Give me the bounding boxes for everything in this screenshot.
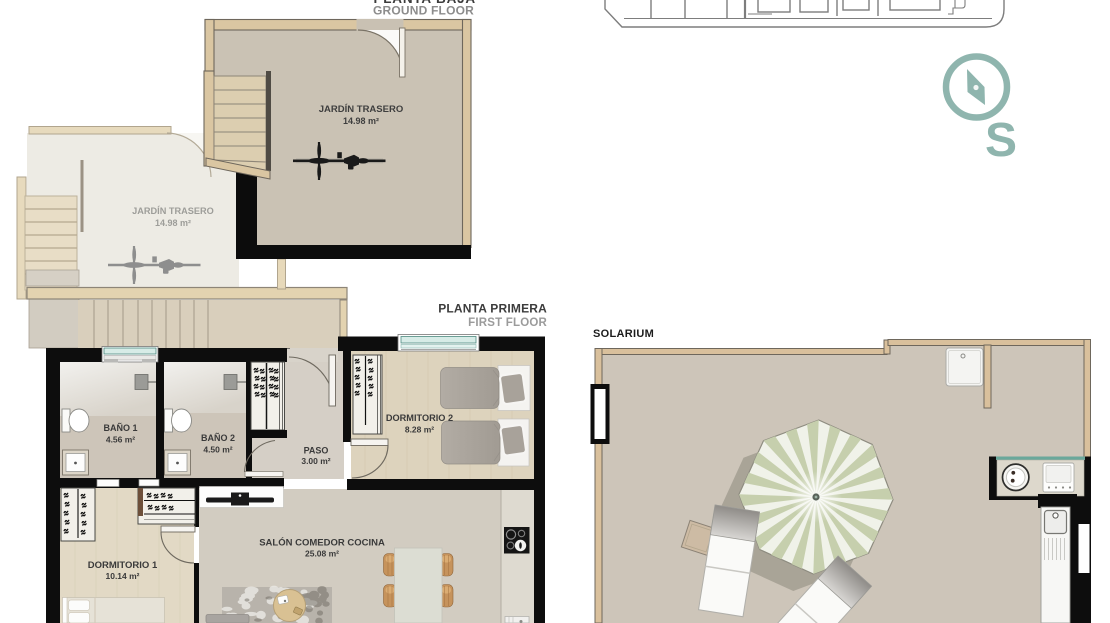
svg-text:PASO: PASO	[304, 446, 329, 456]
svg-text:4.56 m²: 4.56 m²	[106, 435, 135, 445]
svg-text:SALÓN COMEDOR COCINA: SALÓN COMEDOR COCINA	[259, 537, 385, 549]
svg-text:JARDÍN TRASERO: JARDÍN TRASERO	[132, 205, 214, 216]
svg-text:4.50 m²: 4.50 m²	[203, 445, 232, 455]
svg-text:GROUND FLOOR: GROUND FLOOR	[373, 4, 474, 18]
svg-text:25.08 m²: 25.08 m²	[305, 549, 339, 559]
svg-text:JARDÍN TRASERO: JARDÍN TRASERO	[319, 104, 403, 115]
svg-text:DORMITORIO 2: DORMITORIO 2	[386, 413, 453, 423]
svg-text:10.14 m²: 10.14 m²	[105, 571, 139, 581]
svg-text:SOLARIUM: SOLARIUM	[593, 328, 654, 340]
svg-text:PLANTA PRIMERA: PLANTA PRIMERA	[438, 302, 547, 316]
svg-text:DORMITORIO 1: DORMITORIO 1	[88, 560, 158, 571]
svg-text:3.00 m²: 3.00 m²	[301, 456, 330, 466]
svg-text:8.28 m²: 8.28 m²	[405, 425, 434, 435]
svg-text:14.98 m²: 14.98 m²	[155, 218, 191, 228]
svg-text:BAÑO 1: BAÑO 1	[103, 423, 137, 433]
svg-text:BAÑO 2: BAÑO 2	[201, 433, 235, 443]
svg-text:S: S	[985, 114, 1017, 167]
svg-text:FIRST FLOOR: FIRST FLOOR	[468, 317, 547, 329]
svg-text:14.98 m²: 14.98 m²	[343, 116, 379, 126]
